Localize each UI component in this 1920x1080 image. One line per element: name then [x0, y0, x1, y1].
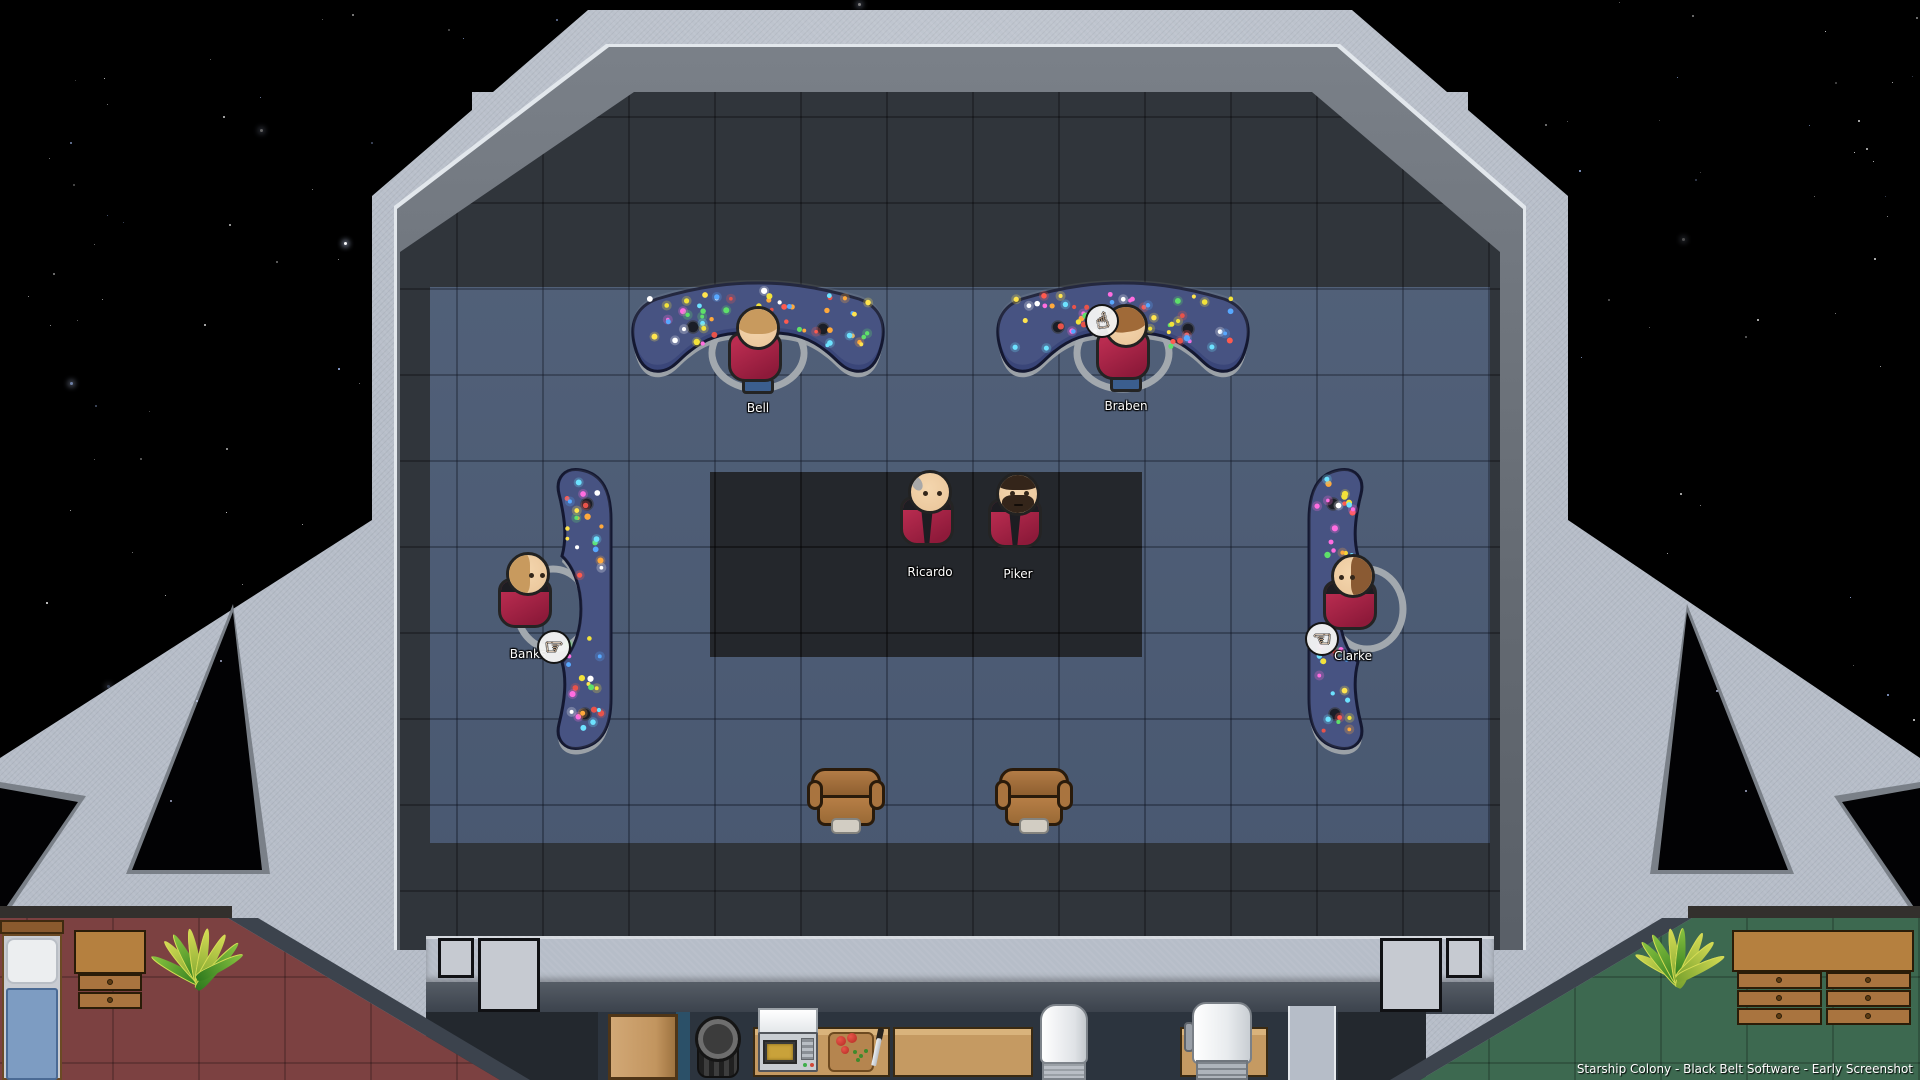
hand-pointing-left-icon: ☜	[1305, 622, 1339, 656]
chopped-greens	[859, 1054, 863, 1058]
crew-head	[908, 470, 952, 514]
console-light	[1229, 297, 1234, 302]
console-light	[580, 711, 585, 716]
console-light	[651, 334, 657, 340]
star	[107, 104, 108, 105]
microwave-screen	[767, 1044, 793, 1060]
eye	[937, 491, 942, 496]
star	[46, 602, 48, 604]
microwave-keypad	[801, 1038, 814, 1060]
star	[140, 458, 142, 460]
console-light	[701, 326, 706, 331]
console-light	[827, 293, 832, 298]
star	[352, 14, 354, 16]
console-light	[568, 499, 572, 503]
star	[463, 38, 464, 39]
console-light	[1180, 313, 1185, 318]
console-light	[575, 545, 579, 549]
star	[123, 222, 124, 223]
console-light	[1331, 691, 1335, 695]
console-light	[594, 490, 600, 496]
console-light	[702, 292, 708, 298]
star	[1757, 319, 1759, 321]
star	[1567, 121, 1568, 122]
console-light	[1076, 319, 1081, 324]
console-light	[565, 537, 569, 541]
console-light	[591, 707, 597, 713]
star	[1853, 665, 1854, 666]
console-light	[588, 684, 594, 690]
console-light	[1013, 345, 1018, 350]
star	[312, 189, 313, 190]
kitchen-wall-segment	[1288, 1006, 1336, 1080]
console-light	[570, 710, 574, 714]
dresser-top	[1732, 930, 1914, 972]
console-light	[797, 327, 802, 332]
console-light	[583, 503, 588, 508]
star	[260, 97, 261, 98]
console-light	[576, 479, 582, 485]
drawer-knob	[1865, 995, 1871, 1001]
console-light	[574, 508, 579, 513]
star	[1835, 313, 1836, 314]
console-light	[1128, 299, 1132, 303]
console-light	[827, 327, 833, 333]
star	[344, 242, 347, 245]
dresser[interactable]	[1732, 930, 1914, 1026]
console-light	[802, 329, 806, 333]
star	[260, 129, 263, 132]
console-light	[1034, 301, 1040, 307]
console-light	[1167, 330, 1171, 334]
console-light	[1228, 308, 1234, 314]
console-light	[682, 327, 686, 331]
console-light	[700, 315, 704, 319]
star	[1835, 82, 1837, 84]
console-light	[1184, 335, 1190, 341]
console-light	[565, 526, 569, 530]
console-light	[1223, 331, 1227, 335]
console-light	[587, 676, 593, 682]
console-light	[847, 333, 853, 339]
console-light	[593, 547, 599, 553]
star	[1545, 124, 1547, 126]
crew-head	[736, 306, 780, 350]
crew-member-bell[interactable]: Bell	[725, 306, 791, 428]
star	[223, 116, 225, 118]
chair-armrest	[869, 780, 885, 810]
star	[70, 510, 71, 511]
star	[107, 215, 108, 216]
console-light	[1326, 499, 1330, 503]
star	[1809, 125, 1810, 126]
door-frame[interactable]	[478, 938, 540, 1012]
console-light	[865, 331, 869, 335]
dresser[interactable]	[74, 930, 146, 1010]
star	[70, 382, 73, 385]
crew-member-clarke[interactable]: Clarke	[1320, 554, 1386, 676]
star	[95, 405, 97, 407]
star	[1700, 172, 1701, 173]
console-light	[597, 557, 603, 563]
console-light	[1050, 303, 1055, 308]
crew-member-ricardo[interactable]: Ricardo	[897, 470, 963, 592]
console-light	[729, 297, 733, 301]
console-light	[1227, 337, 1233, 343]
console-light	[574, 516, 578, 520]
star	[1659, 120, 1660, 121]
star	[1814, 196, 1815, 197]
console-light	[1345, 698, 1350, 703]
drawer-knob	[107, 979, 113, 985]
bedroom-right-wall	[1688, 906, 1920, 918]
star	[229, 224, 231, 226]
water-heater[interactable]	[1192, 1002, 1252, 1080]
star	[1825, 31, 1826, 32]
console-light	[684, 298, 689, 303]
console-light	[825, 343, 829, 347]
console-light	[1121, 297, 1126, 302]
bed[interactable]	[0, 920, 64, 1080]
console-light	[1202, 299, 1208, 305]
crew-hair	[506, 552, 530, 596]
microwave-light-red	[810, 1063, 814, 1067]
drawer-knob	[107, 997, 113, 1003]
bridge-bottom-wall	[426, 936, 1494, 982]
crew-head	[996, 472, 1040, 516]
bedroom-left-wall	[0, 906, 232, 918]
star	[302, 524, 303, 525]
star	[1873, 161, 1874, 162]
crew-name-label: Braben	[1104, 399, 1147, 413]
console-light	[843, 296, 847, 300]
star	[1680, 493, 1682, 495]
crew-head	[1331, 554, 1375, 598]
console-light	[761, 288, 767, 294]
paper-towel-unit[interactable]	[1040, 1004, 1088, 1080]
star	[1716, 690, 1718, 692]
eye	[1339, 575, 1344, 580]
star	[276, 261, 278, 263]
chopped-greens	[853, 1050, 857, 1054]
star	[1913, 719, 1915, 721]
console-light	[1044, 346, 1049, 351]
drawer-knob	[1865, 1013, 1871, 1019]
console-light	[1332, 525, 1338, 531]
star	[226, 448, 228, 450]
star	[73, 184, 75, 186]
console-light	[1314, 504, 1319, 509]
door-frame[interactable]	[1380, 938, 1442, 1012]
console-light	[1324, 477, 1329, 482]
console-light	[1192, 294, 1196, 298]
star	[1579, 170, 1581, 172]
console-light	[697, 303, 702, 308]
console-light	[672, 338, 678, 344]
star	[226, 512, 227, 513]
potted-plant[interactable]	[1638, 918, 1718, 1018]
star	[149, 411, 150, 412]
console-light	[579, 675, 585, 681]
chair-armrest	[1057, 780, 1073, 810]
bed-pillow	[6, 938, 58, 984]
star	[371, 142, 373, 144]
star	[94, 459, 95, 460]
star	[1916, 17, 1918, 19]
tomato	[836, 1036, 846, 1046]
console-sheen	[560, 470, 611, 749]
star	[1700, 505, 1701, 506]
crew-hair	[736, 306, 780, 334]
console-light	[1042, 303, 1047, 308]
crew-name-label: Clarke	[1334, 649, 1372, 663]
chair-cushion	[1019, 818, 1049, 834]
star	[1745, 790, 1747, 792]
microwave[interactable]	[758, 1008, 818, 1072]
console-light	[1108, 292, 1113, 297]
hand-pointing-up-icon: ☝	[1085, 304, 1119, 338]
crew-hair	[909, 475, 925, 493]
star	[242, 584, 243, 585]
star	[77, 320, 78, 321]
watermark-caption: Starship Colony - Black Belt Software - …	[1577, 1062, 1913, 1076]
console-light	[1347, 716, 1351, 720]
console-light	[859, 342, 863, 346]
star	[1885, 196, 1886, 197]
star	[858, 3, 861, 6]
kitchen-counter[interactable]	[893, 1027, 1033, 1077]
console-light	[580, 491, 586, 497]
chair-armrest	[995, 780, 1011, 810]
door-frame[interactable]	[438, 938, 474, 978]
star	[1608, 299, 1610, 301]
console-light	[599, 524, 603, 528]
console-light	[1329, 540, 1334, 545]
star	[53, 273, 55, 275]
star	[49, 158, 50, 159]
star	[1892, 82, 1893, 83]
console-light	[590, 719, 596, 725]
star	[75, 80, 76, 81]
star	[220, 660, 222, 662]
water-heater-grille	[1196, 1060, 1248, 1080]
console-light	[1059, 294, 1063, 298]
console-light	[1331, 548, 1336, 553]
potted-plant[interactable]	[158, 918, 238, 1018]
console-light	[1169, 322, 1174, 327]
star	[70, 142, 72, 144]
console-light	[647, 296, 653, 302]
star	[1695, 179, 1697, 181]
star	[1887, 216, 1888, 217]
star	[448, 29, 450, 31]
star	[359, 383, 360, 384]
star	[1874, 258, 1876, 260]
hand-pointing-right-icon: ☞	[537, 630, 571, 664]
star	[1912, 76, 1913, 77]
console-light	[566, 662, 571, 667]
star	[1619, 2, 1620, 3]
console-light	[666, 319, 671, 324]
star	[132, 552, 133, 553]
console-light	[1347, 727, 1351, 731]
console-light	[587, 636, 592, 641]
star	[1692, 15, 1694, 17]
drawer-knob	[1776, 995, 1782, 1001]
crew-name-label: Piker	[1003, 567, 1032, 581]
console-light	[595, 686, 599, 690]
console-light	[694, 339, 700, 345]
star	[104, 78, 105, 79]
console-light	[1209, 344, 1214, 349]
star	[165, 595, 166, 596]
star	[1880, 366, 1881, 367]
console-light	[1336, 503, 1342, 509]
console-light	[598, 654, 602, 658]
eye	[923, 491, 928, 496]
door-frame[interactable]	[1446, 938, 1482, 978]
eye	[1350, 575, 1355, 580]
star	[107, 685, 110, 688]
console-light	[1014, 297, 1019, 302]
bed-headboard	[0, 920, 64, 934]
console-light	[664, 303, 669, 308]
star	[1745, 336, 1747, 338]
star	[1858, 120, 1860, 122]
waste-bin-lid	[695, 1016, 741, 1062]
crew-member-piker[interactable]: Piker	[985, 472, 1051, 594]
star	[1677, 77, 1678, 78]
star	[1682, 238, 1685, 241]
console-light	[824, 308, 829, 313]
drawer-knob	[1776, 1013, 1782, 1019]
console-light	[1337, 715, 1342, 720]
star	[196, 700, 198, 702]
crew-head	[506, 552, 550, 596]
crew-name-label: Ricardo	[907, 565, 952, 579]
console-light	[597, 708, 601, 712]
console-light	[1023, 318, 1028, 323]
star	[28, 296, 29, 297]
captain-chair-left[interactable]	[807, 768, 885, 836]
console-light	[714, 294, 719, 299]
star	[1854, 152, 1855, 153]
star	[1850, 597, 1851, 598]
console-light	[685, 313, 689, 317]
star	[322, 19, 323, 20]
waste-bin[interactable]	[695, 1016, 741, 1080]
tomato	[841, 1046, 849, 1054]
chair-cushion	[831, 818, 861, 834]
crew-name-label: Bell	[747, 401, 769, 415]
console-light	[600, 566, 604, 570]
console-light	[1346, 502, 1352, 508]
eye	[529, 573, 534, 578]
console-light	[1071, 329, 1076, 334]
console-light	[709, 317, 713, 321]
console-light	[569, 691, 575, 697]
console-knob	[687, 321, 699, 333]
star	[1887, 694, 1889, 696]
console-light	[1322, 729, 1326, 733]
console-light	[584, 513, 590, 519]
console-light	[1351, 507, 1355, 511]
star	[1667, 553, 1668, 554]
console-light	[1168, 344, 1173, 349]
console-light	[577, 573, 582, 578]
drawer-knob	[1865, 977, 1871, 983]
console-light	[1175, 298, 1181, 304]
microwave-light-green	[803, 1063, 807, 1067]
star	[338, 259, 339, 260]
console-light	[1325, 717, 1330, 722]
console-light	[580, 725, 586, 731]
star	[94, 244, 95, 245]
star	[210, 59, 211, 60]
console-light	[1170, 339, 1175, 344]
console-light	[1041, 293, 1047, 299]
console-light	[1341, 493, 1347, 499]
star	[1649, 327, 1650, 328]
bed-blanket	[6, 988, 58, 1080]
star	[338, 368, 340, 370]
crew-hair	[996, 472, 1040, 490]
captain-chair-right[interactable]	[995, 768, 1073, 836]
console-light	[1072, 305, 1076, 309]
microwave-top	[758, 1008, 818, 1034]
dresser-top	[74, 930, 146, 974]
console-light	[778, 300, 782, 304]
console-light	[1058, 323, 1064, 329]
console-light	[594, 536, 600, 542]
console-light	[865, 300, 871, 306]
console-light	[852, 312, 857, 317]
game-viewport: Bell Braben Ricardo Piker	[0, 0, 1920, 1080]
star	[1866, 148, 1868, 150]
star	[204, 324, 206, 326]
console-light	[711, 332, 717, 338]
paper-towel-roll	[1040, 1004, 1088, 1064]
console-light	[1342, 688, 1348, 694]
console-light	[1336, 720, 1340, 724]
drawer-knob	[1776, 977, 1782, 983]
console-light	[1063, 302, 1068, 307]
star	[556, 19, 558, 21]
star	[170, 800, 172, 802]
star	[1581, 357, 1582, 358]
tomato	[847, 1033, 857, 1043]
paper-towel-base	[1042, 1062, 1086, 1080]
eye	[540, 573, 545, 578]
star	[102, 299, 103, 300]
console-light	[701, 341, 705, 345]
console-light	[1027, 303, 1032, 308]
chopped-greens	[864, 1049, 868, 1053]
chopped-greens	[856, 1058, 860, 1062]
star	[50, 325, 51, 326]
kitchen-door[interactable]	[608, 1014, 678, 1080]
crew-mouth	[1014, 504, 1023, 506]
water-heater-body	[1192, 1002, 1252, 1064]
console-light	[814, 330, 818, 334]
chair-armrest	[807, 780, 823, 810]
